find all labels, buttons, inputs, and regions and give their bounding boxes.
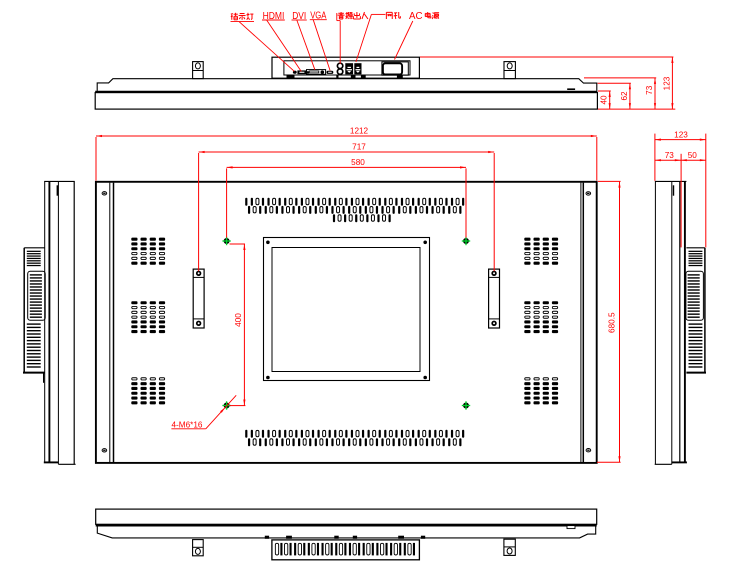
svg-text:717: 717 <box>352 143 366 152</box>
svg-text:580: 580 <box>351 158 365 167</box>
svg-text:62: 62 <box>620 91 629 101</box>
svg-text:123: 123 <box>662 76 671 90</box>
svg-text:40: 40 <box>600 95 609 105</box>
svg-text:123: 123 <box>674 130 688 139</box>
svg-text:AC: AC <box>409 11 423 22</box>
svg-text:73: 73 <box>645 85 654 95</box>
svg-text:680.5: 680.5 <box>608 312 617 333</box>
svg-text:50: 50 <box>688 151 698 160</box>
svg-text:1212: 1212 <box>350 127 369 136</box>
svg-text:400: 400 <box>234 313 243 327</box>
svg-text:4-M6*16: 4-M6*16 <box>172 421 203 430</box>
svg-text:73: 73 <box>665 151 675 160</box>
